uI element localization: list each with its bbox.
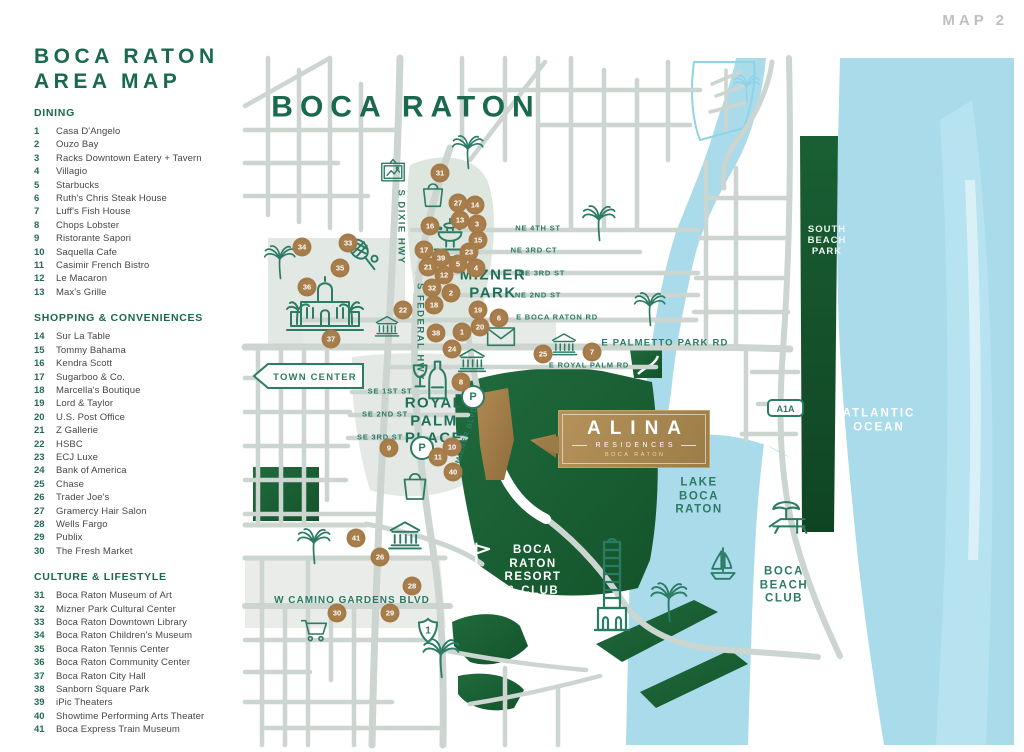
legend-item: 9Ristorante Sapori xyxy=(34,232,248,245)
legend-item: 2Ouzo Bay xyxy=(34,138,248,151)
legend-item-label: Lord & Taylor xyxy=(56,397,113,410)
legend-item-label: Villagio xyxy=(56,165,87,178)
map-marker-35: 35 xyxy=(331,259,350,278)
legend-item-number: 34 xyxy=(34,629,56,642)
map-marker-11: 11 xyxy=(429,448,448,467)
legend-item: 41Boca Express Train Museum xyxy=(34,723,248,736)
legend-item-number: 9 xyxy=(34,232,56,245)
street-label: E ROYAL PALM RD xyxy=(549,362,629,371)
legend-item: 36Boca Raton Community Center xyxy=(34,656,248,669)
legend-item-label: Racks Downtown Eatery + Tavern xyxy=(56,152,202,165)
legend-section-title: CULTURE & LIFESTYLE xyxy=(34,571,248,583)
palm-icon xyxy=(449,134,485,170)
map-marker-20: 20 xyxy=(471,318,490,337)
legend-section: DINING1Casa D'Angelo2Ouzo Bay3Racks Down… xyxy=(34,107,248,299)
legend-item: 25Chase xyxy=(34,478,248,491)
map-marker-40: 40 xyxy=(444,463,463,482)
legend-item-label: Publix xyxy=(56,531,82,544)
svg-text:TOWN CENTER: TOWN CENTER xyxy=(273,372,357,383)
legend-item: 24Bank of America xyxy=(34,464,248,477)
legend-item-number: 16 xyxy=(34,357,56,370)
street-label: E BOCA RATON RD xyxy=(516,314,598,323)
legend-item: 15Tommy Bahama xyxy=(34,344,248,357)
legend-section: CULTURE & LIFESTYLE31Boca Raton Museum o… xyxy=(34,571,248,736)
legend-item: 29Publix xyxy=(34,531,248,544)
legend-item-label: Boca Raton Community Center xyxy=(56,656,190,669)
legend-item: 5Starbucks xyxy=(34,179,248,192)
legend-section: SHOPPING & CONVENIENCES14Sur La Table15T… xyxy=(34,312,248,558)
sailboat-icon xyxy=(703,543,743,583)
palm-icon xyxy=(731,74,761,104)
alina-subtitle: RESIDENCES xyxy=(559,442,709,449)
legend-item-number: 11 xyxy=(34,259,56,272)
legend-item: 40Showtime Performing Arts Theater xyxy=(34,710,248,723)
legend-item-label: Sanborn Square Park xyxy=(56,683,149,696)
legend-item-label: Kendra Scott xyxy=(56,357,112,370)
legend-item-label: Mizner Park Cultural Center xyxy=(56,603,176,616)
bank-icon xyxy=(386,516,424,554)
map-marker-25: 25 xyxy=(534,345,553,364)
legend-item-label: Showtime Performing Arts Theater xyxy=(56,710,204,723)
legend-item-number: 10 xyxy=(34,246,56,259)
legend-item-label: Gramercy Hair Salon xyxy=(56,505,147,518)
frame-icon xyxy=(378,157,408,187)
bank-icon xyxy=(549,329,579,359)
legend-item-number: 7 xyxy=(34,205,56,218)
legend-item-number: 3 xyxy=(34,152,56,165)
legend-item: 23ECJ Luxe xyxy=(34,451,248,464)
palm-icon xyxy=(294,527,332,565)
legend-item: 38Sanborn Square Park xyxy=(34,683,248,696)
legend-item-number: 32 xyxy=(34,603,56,616)
legend-item-number: 1 xyxy=(34,125,56,138)
legend-item-number: 20 xyxy=(34,411,56,424)
alina-residences-callout: ALINA RESIDENCES BOCA RATON xyxy=(558,410,710,468)
legend-item: 22HSBC xyxy=(34,438,248,451)
street-label: NE 2ND ST xyxy=(515,292,561,301)
legend-item-label: Z Gallerie xyxy=(56,424,98,437)
legend-item: 17Sugarboo & Co. xyxy=(34,371,248,384)
town-center-sign: TOWN CENTER xyxy=(252,362,366,390)
street-label: S DIXIE HWY xyxy=(395,189,406,264)
legend-item-number: 40 xyxy=(34,710,56,723)
legend-item-number: 13 xyxy=(34,286,56,299)
legend-item: 32Mizner Park Cultural Center xyxy=(34,603,248,616)
legend-item-number: 15 xyxy=(34,344,56,357)
svg-text:A1A: A1A xyxy=(776,404,795,414)
legend-item: 12Le Macaron xyxy=(34,272,248,285)
alina-name: ALINA xyxy=(559,418,709,440)
boca-raton-area-map-page: BOCA RATON AREA MAP DINING1Casa D'Angelo… xyxy=(0,0,1024,752)
street-label: SE 1ST ST xyxy=(368,388,413,397)
legend-section-title: SHOPPING & CONVENIENCES xyxy=(34,312,248,324)
map-marker-27: 27 xyxy=(449,194,468,213)
legend-item-number: 18 xyxy=(34,384,56,397)
palm-icon xyxy=(647,581,689,623)
legend-item: 39iPic Theaters xyxy=(34,696,248,709)
legend-item: 20U.S. Post Office xyxy=(34,411,248,424)
legend-item-label: Tommy Bahama xyxy=(56,344,126,357)
legend-item-label: Ristorante Sapori xyxy=(56,232,131,245)
map-marker-41: 41 xyxy=(347,529,366,548)
legend-item: 33Boca Raton Downtown Library xyxy=(34,616,248,629)
legend-item: 11Casimir French Bistro xyxy=(34,259,248,272)
area-label: ATLANTIC OCEAN xyxy=(843,407,916,434)
map-marker-6: 6 xyxy=(490,309,509,328)
legend-item-label: Bank of America xyxy=(56,464,127,477)
us-1-route-shield: 1 xyxy=(417,617,439,644)
legend-item: 8Chops Lobster xyxy=(34,219,248,232)
legend-sections: DINING1Casa D'Angelo2Ouzo Bay3Racks Down… xyxy=(34,107,248,737)
map-marker-16: 16 xyxy=(421,217,440,236)
legend-item: 21Z Gallerie xyxy=(34,424,248,437)
area-label: SOUTH BEACH PARK xyxy=(808,224,847,258)
legend-item-label: Boca Express Train Museum xyxy=(56,723,180,736)
map-marker-32: 32 xyxy=(423,279,442,298)
palm-icon xyxy=(631,291,667,327)
map-marker-33: 33 xyxy=(339,234,358,253)
map-marker-2: 2 xyxy=(442,284,461,303)
legend-item-number: 30 xyxy=(34,545,56,558)
legend-item: 27Gramercy Hair Salon xyxy=(34,505,248,518)
legend-item-label: Starbucks xyxy=(56,179,99,192)
legend-item-number: 31 xyxy=(34,589,56,602)
map-number-label: MAP 2 xyxy=(942,12,1008,29)
map-marker-28: 28 xyxy=(403,577,422,596)
legend-item-number: 19 xyxy=(34,397,56,410)
legend-item-number: 27 xyxy=(34,505,56,518)
alina-city: BOCA RATON xyxy=(559,452,709,458)
map-marker-38: 38 xyxy=(427,324,446,343)
legend-item-number: 38 xyxy=(34,683,56,696)
legend-item-label: Le Macaron xyxy=(56,272,107,285)
map-marker-29: 29 xyxy=(381,604,400,623)
legend-item: 18Marcella's Boutique xyxy=(34,384,248,397)
tower-icon xyxy=(592,538,632,643)
map-marker-22: 22 xyxy=(394,301,413,320)
legend-item: 37Boca Raton City Hall xyxy=(34,670,248,683)
page-title: BOCA RATON AREA MAP xyxy=(34,44,248,94)
legend-item-label: Boca Raton Children's Museum xyxy=(56,629,192,642)
rule-right xyxy=(681,445,696,446)
map-marker-9: 9 xyxy=(380,439,399,458)
area-label: BOCA RATON RESORT & CLUB xyxy=(505,544,562,598)
legend-item: 34Boca Raton Children's Museum xyxy=(34,629,248,642)
street-label: NE 4TH ST xyxy=(515,225,561,234)
street-label: NE 3RD CT xyxy=(511,247,558,256)
legend-item-label: Chops Lobster xyxy=(56,219,119,232)
map-marker-23: 23 xyxy=(460,243,479,262)
street-label: W CAMINO GARDENS BLVD xyxy=(274,595,430,607)
legend-item-label: U.S. Post Office xyxy=(56,411,125,424)
area-label: LAKE BOCA RATON xyxy=(675,477,722,518)
legend-item-number: 12 xyxy=(34,272,56,285)
legend-item-label: Sugarboo & Co. xyxy=(56,371,125,384)
legend-item-label: Boca Raton Tennis Center xyxy=(56,643,169,656)
legend-item: 1Casa D'Angelo xyxy=(34,125,248,138)
legend-item-label: Marcella's Boutique xyxy=(56,384,141,397)
map-marker-14: 14 xyxy=(466,196,485,215)
legend-item-number: 22 xyxy=(34,438,56,451)
legend-item-number: 21 xyxy=(34,424,56,437)
map-marker-34: 34 xyxy=(293,238,312,257)
legend-item-number: 39 xyxy=(34,696,56,709)
legend-item-number: 17 xyxy=(34,371,56,384)
map-marker-31: 31 xyxy=(431,164,450,183)
legend-item: 30The Fresh Market xyxy=(34,545,248,558)
legend-item-number: 36 xyxy=(34,656,56,669)
map-marker-30: 30 xyxy=(328,604,347,623)
map-marker-1: 1 xyxy=(453,323,472,342)
legend-item: 28Wells Fargo xyxy=(34,518,248,531)
legend-item-label: Saquella Cafe xyxy=(56,246,117,259)
legend-item: 19Lord & Taylor xyxy=(34,397,248,410)
legend-item-number: 37 xyxy=(34,670,56,683)
legend-item-label: Casimir French Bistro xyxy=(56,259,149,272)
golf-icon xyxy=(458,538,502,582)
legend-item: 13Max's Grille xyxy=(34,286,248,299)
legend-item-number: 41 xyxy=(34,723,56,736)
legend-item-number: 4 xyxy=(34,165,56,178)
legend-item: 10Saquella Cafe xyxy=(34,246,248,259)
legend-item-label: Sur La Table xyxy=(56,330,110,343)
legend-item-number: 6 xyxy=(34,192,56,205)
map-marker-8: 8 xyxy=(452,373,471,392)
cityhall-icon xyxy=(285,274,365,332)
legend-item-label: Boca Raton Museum of Art xyxy=(56,589,172,602)
legend-item-label: Max's Grille xyxy=(56,286,107,299)
legend-item-number: 26 xyxy=(34,491,56,504)
legend-item-number: 2 xyxy=(34,138,56,151)
legend-item-label: Wells Fargo xyxy=(56,518,108,531)
legend-sidebar: BOCA RATON AREA MAP DINING1Casa D'Angelo… xyxy=(34,44,248,737)
legend-item-number: 23 xyxy=(34,451,56,464)
alina-callout-pointer xyxy=(536,436,559,455)
rule-left xyxy=(572,445,587,446)
legend-item-number: 8 xyxy=(34,219,56,232)
bag-icon xyxy=(397,466,433,502)
legend-item-label: iPic Theaters xyxy=(56,696,113,709)
legend-item: 35Boca Raton Tennis Center xyxy=(34,643,248,656)
legend-item-label: Boca Raton Downtown Library xyxy=(56,616,187,629)
legend-item-number: 29 xyxy=(34,531,56,544)
beachchair-icon xyxy=(766,498,810,542)
map-marker-24: 24 xyxy=(443,340,462,359)
legend-item-number: 5 xyxy=(34,179,56,192)
legend-item-label: ECJ Luxe xyxy=(56,451,98,464)
legend-item-label: The Fresh Market xyxy=(56,545,133,558)
legend-item: 16Kendra Scott xyxy=(34,357,248,370)
legend-item-label: HSBC xyxy=(56,438,83,451)
legend-item-number: 25 xyxy=(34,478,56,491)
map-marker-37: 37 xyxy=(322,330,341,349)
bag-icon xyxy=(417,177,449,209)
legend-item-label: Luff's Fish House xyxy=(56,205,131,218)
street-label: SE 2ND ST xyxy=(362,411,408,420)
legend-item-number: 14 xyxy=(34,330,56,343)
area-label: BOCA BEACH CLUB xyxy=(760,566,808,607)
map-marker-18: 18 xyxy=(425,296,444,315)
cart-icon xyxy=(299,614,331,646)
legend-item: 4Villagio xyxy=(34,165,248,178)
legend-item: 14Sur La Table xyxy=(34,330,248,343)
a1a-route-sign: A1A xyxy=(766,398,806,419)
legend-item-label: Chase xyxy=(56,478,84,491)
legend-item: 26Trader Joe's xyxy=(34,491,248,504)
legend-item-label: Casa D'Angelo xyxy=(56,125,120,138)
legend-item-number: 28 xyxy=(34,518,56,531)
legend-item-label: Ouzo Bay xyxy=(56,138,99,151)
map-marker-39: 39 xyxy=(432,249,451,268)
map-marker-26: 26 xyxy=(371,548,390,567)
legend-item: 31Boca Raton Museum of Art xyxy=(34,589,248,602)
street-label: NE 3RD ST xyxy=(519,270,565,279)
legend-item: 6Ruth's Chris Steak House xyxy=(34,192,248,205)
legend-item-number: 35 xyxy=(34,643,56,656)
wine-icon xyxy=(410,358,454,402)
legend-item-number: 24 xyxy=(34,464,56,477)
legend-item-label: Ruth's Chris Steak House xyxy=(56,192,167,205)
map-marker-7: 7 xyxy=(583,343,602,362)
legend-section-title: DINING xyxy=(34,107,248,119)
palm-icon xyxy=(579,204,617,242)
area-label: BOCA RATON xyxy=(271,89,540,124)
legend-item-number: 33 xyxy=(34,616,56,629)
map-marker-36: 36 xyxy=(298,278,317,297)
svg-text:1: 1 xyxy=(425,626,431,637)
legend-item: 7Luff's Fish House xyxy=(34,205,248,218)
legend-item-label: Trader Joe's xyxy=(56,491,109,504)
map-marker-13: 13 xyxy=(451,211,470,230)
legend-item-label: Boca Raton City Hall xyxy=(56,670,146,683)
street-label: E PALMETTO PARK RD xyxy=(601,337,728,348)
legend-item: 3Racks Downtown Eatery + Tavern xyxy=(34,152,248,165)
